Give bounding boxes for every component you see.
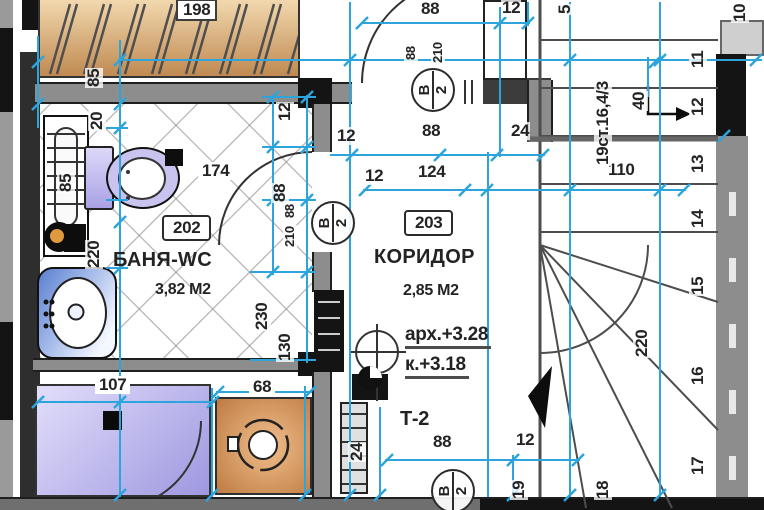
stair-num-18: 18 <box>594 480 612 500</box>
dim-88-mid: 88 <box>421 122 441 140</box>
wall-black-segment <box>352 374 388 400</box>
dim-19: 19 <box>510 480 528 500</box>
wall-black-segment <box>0 28 13 112</box>
dim-210-door-top: 210 <box>431 41 445 64</box>
dim-12-top: 12 <box>501 0 521 17</box>
dim-5: 5 <box>556 4 574 15</box>
dim-230: 230 <box>253 302 271 331</box>
dim-68: 68 <box>249 378 275 396</box>
toilet-flush-button <box>165 149 183 166</box>
stair-spec: 19ст.16,4/3 <box>594 80 612 166</box>
stair-num-10: 10 <box>731 3 749 23</box>
dim-85-top: 85 <box>85 68 103 88</box>
dim-124: 124 <box>417 163 446 181</box>
stair-num-15: 15 <box>689 276 707 296</box>
dim-24-mid: 24 <box>510 122 530 140</box>
toilet-bowl-inner <box>118 157 166 200</box>
dim-88-wall-v: 88 <box>271 183 289 203</box>
stair-num-12: 12 <box>689 97 707 117</box>
door-tag-corridor-top: В2 <box>411 68 455 112</box>
room-name-bathroom: БАНЯ-WC <box>112 250 213 271</box>
dim-12-bottom: 12 <box>515 431 535 449</box>
stair-entry-wall <box>527 80 553 142</box>
wall-light-block <box>720 20 764 56</box>
stair-num-17: 17 <box>689 456 707 476</box>
corridor-west-wall-mid <box>312 252 332 292</box>
dim-220-left: 220 <box>85 240 103 269</box>
radiator-valve-knob <box>50 229 64 243</box>
door-tag-bottom: В2 <box>431 469 475 510</box>
room-tag-corridor: 203 <box>404 210 453 236</box>
dim-24-radiator: 24 <box>348 442 366 462</box>
radiator-tag: Т-2 <box>399 409 430 430</box>
dim-198: 198 <box>176 0 217 21</box>
dim-107: 107 <box>95 376 130 394</box>
room-area-bathroom: 3,82 М2 <box>154 282 212 299</box>
dim-40: 40 <box>630 91 648 111</box>
shower-door-pivot <box>103 411 122 430</box>
corridor-west-wall-lower <box>312 372 332 497</box>
wall-black-segment <box>716 54 746 138</box>
sink-basin <box>49 277 107 349</box>
wall-insulation-dashes <box>729 150 736 495</box>
dim-88-top: 88 <box>420 0 440 18</box>
stair-num-11: 11 <box>689 50 707 69</box>
corridor-west-wall-upper <box>312 104 332 152</box>
dim-130: 130 <box>276 333 294 362</box>
dim-12-b: 12 <box>364 167 384 185</box>
stair-num-14: 14 <box>689 209 707 229</box>
dim-12-wall-v: 12 <box>276 102 294 122</box>
level-arch: арх.+3.28 <box>405 325 491 349</box>
washing-machine <box>215 397 312 495</box>
dim-174: 174 <box>198 162 233 180</box>
room-name-corridor: КОРИДОР <box>373 247 476 268</box>
dim-85-radiator: 85 <box>57 173 75 193</box>
stair-treads <box>527 0 718 508</box>
dim-210-door-bath: 210 <box>283 225 297 248</box>
dim-220-stairs: 220 <box>633 329 651 358</box>
dim-12-a: 12 <box>336 127 356 145</box>
shower-area <box>35 384 211 497</box>
room-tag-bathroom: 202 <box>162 215 211 241</box>
door-tag-bathroom: В2 <box>311 201 355 245</box>
shaft-column <box>314 290 344 372</box>
level-finish: к.+3.18 <box>405 355 469 379</box>
wardrobe <box>38 0 300 78</box>
floor-plan-canvas: 202 БАНЯ-WC 3,82 М2 203 КОРИДОР 2,85 М2 … <box>0 0 764 510</box>
dim-88-bottom: 88 <box>432 433 452 451</box>
dim-88-door-top: 88 <box>404 45 418 61</box>
dim-20: 20 <box>88 111 106 131</box>
wall-black-segment <box>0 322 13 420</box>
wall-black-segment <box>480 499 764 510</box>
room-area-corridor: 2,85 М2 <box>402 283 460 300</box>
stair-num-13: 13 <box>689 154 707 174</box>
dim-88-door-bath: 88 <box>283 203 297 219</box>
stair-num-16: 16 <box>689 366 707 386</box>
